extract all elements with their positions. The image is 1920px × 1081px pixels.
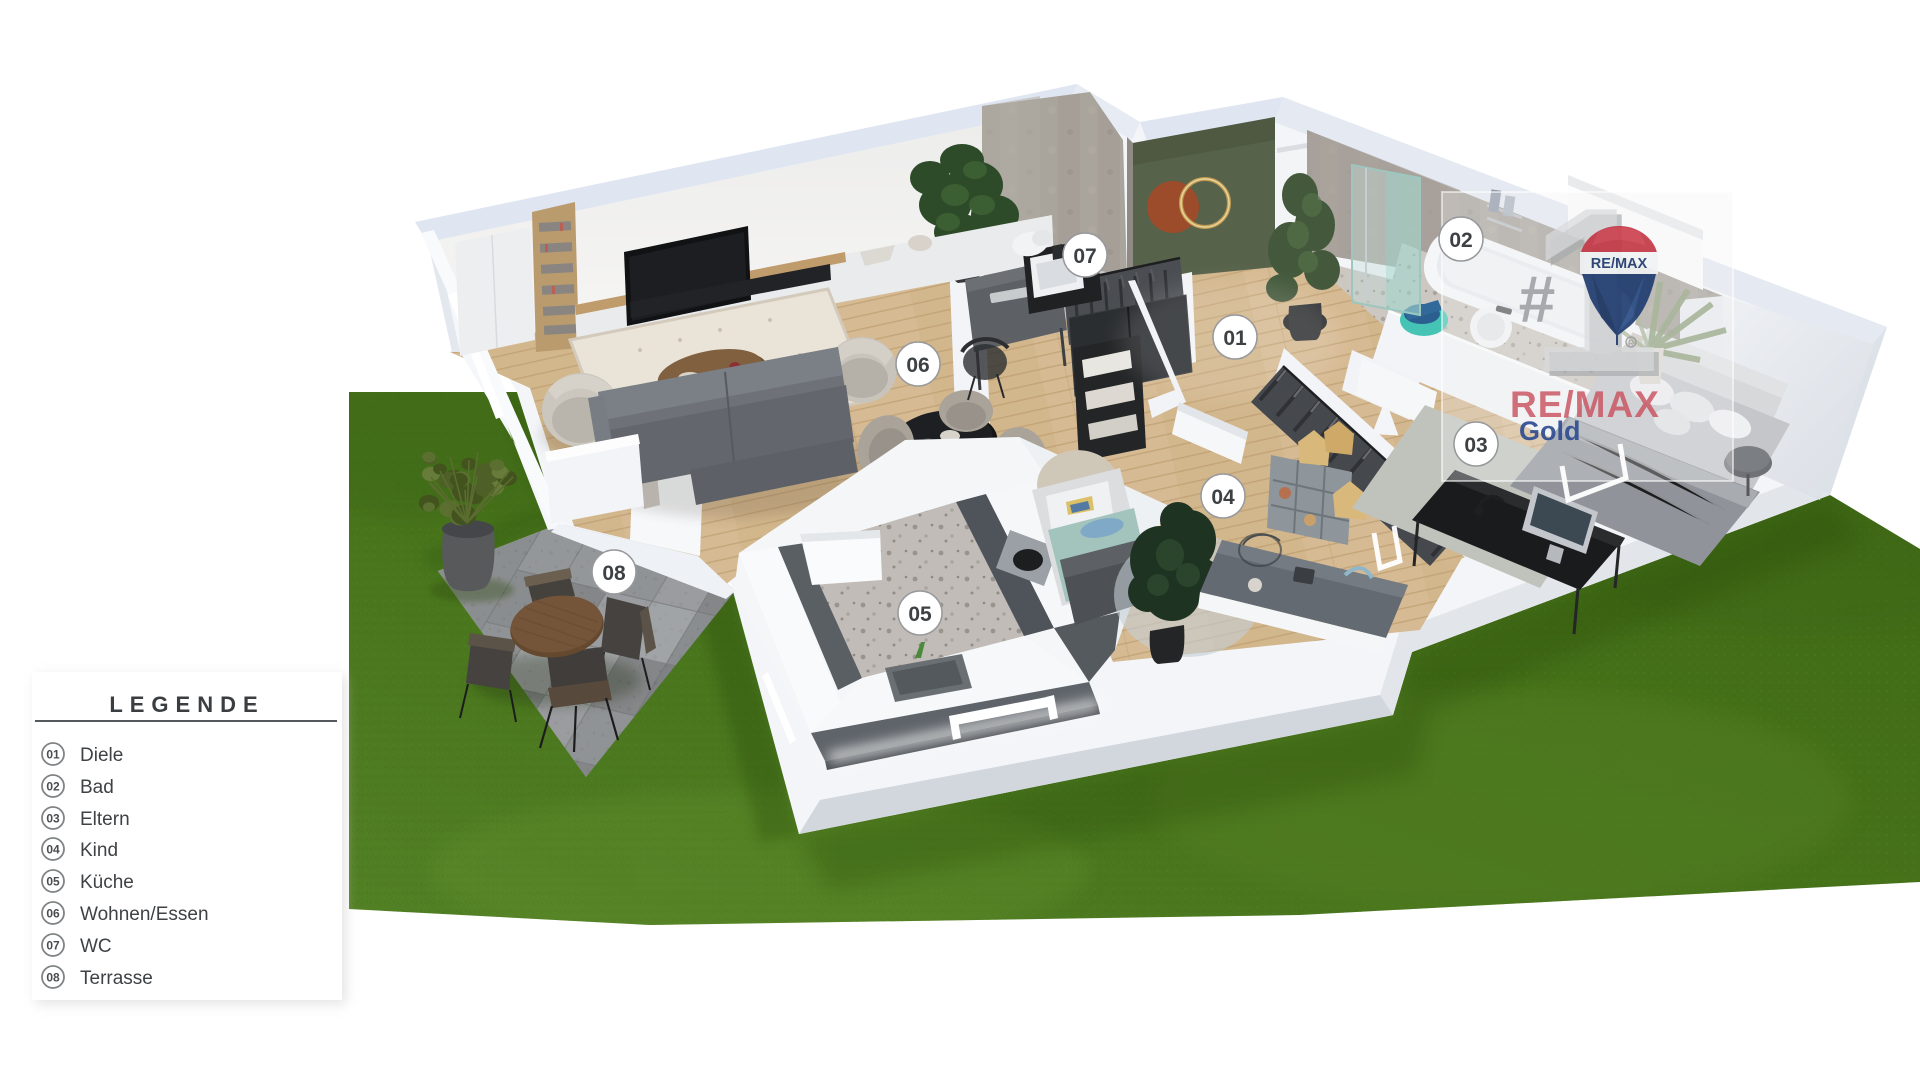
svg-text:02: 02 <box>46 780 60 794</box>
svg-text:LEGENDE: LEGENDE <box>109 692 264 717</box>
svg-text:06: 06 <box>906 354 929 377</box>
svg-text:02: 02 <box>1449 229 1472 252</box>
svg-text:Wohnen/Essen: Wohnen/Essen <box>80 904 209 925</box>
svg-text:01: 01 <box>1223 327 1247 350</box>
svg-text:08: 08 <box>46 971 60 985</box>
svg-text:03: 03 <box>46 812 60 826</box>
svg-text:Bad: Bad <box>80 777 114 798</box>
svg-text:05: 05 <box>908 603 932 626</box>
svg-text:WC: WC <box>80 936 112 957</box>
svg-text:04: 04 <box>1211 486 1235 509</box>
svg-text:Terrasse: Terrasse <box>80 968 153 989</box>
svg-text:04: 04 <box>46 843 60 857</box>
svg-text:R: R <box>1628 339 1634 348</box>
svg-text:#: # <box>1519 262 1556 336</box>
svg-text:Gold: Gold <box>1519 416 1581 446</box>
svg-text:Kind: Kind <box>80 840 118 861</box>
svg-text:Diele: Diele <box>80 745 123 766</box>
svg-text:07: 07 <box>46 939 60 953</box>
svg-text:Eltern: Eltern <box>80 809 130 830</box>
svg-text:08: 08 <box>602 562 626 585</box>
svg-text:07: 07 <box>1073 245 1096 268</box>
svg-text:Küche: Küche <box>80 872 134 893</box>
svg-text:RE/MAX: RE/MAX <box>1591 256 1648 272</box>
svg-text:05: 05 <box>46 875 60 889</box>
svg-text:03: 03 <box>1464 434 1487 457</box>
svg-text:01: 01 <box>46 748 60 762</box>
svg-text:06: 06 <box>46 907 60 921</box>
